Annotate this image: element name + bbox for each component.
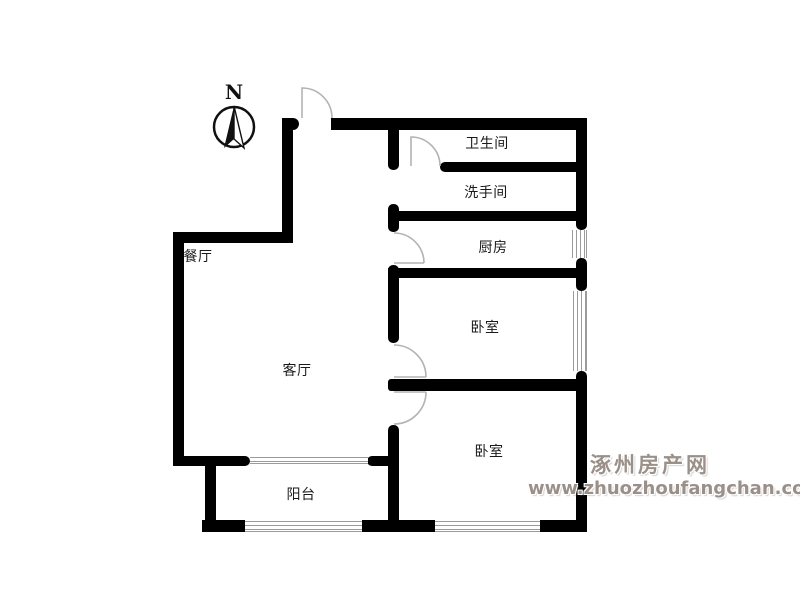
room-label-bedroom-south: 卧室: [475, 441, 504, 461]
compass-needle-light: [234, 106, 244, 148]
wall-washroom-bottom: [388, 211, 587, 221]
wall-bedroom-divider: [388, 379, 587, 391]
room-label-bathroom: 卫生间: [465, 133, 509, 153]
room-label-balcony: 阳台: [287, 484, 316, 504]
wall-kitchen-bottom: [388, 268, 587, 278]
wall-center-seg-3: [388, 265, 399, 343]
wall-bottom-right: [540, 520, 587, 532]
bedroom-south-window: [435, 521, 540, 532]
wall-top: [331, 118, 587, 130]
compass-circle: [214, 107, 254, 147]
wall-bottom-balcony-left: [202, 520, 245, 532]
compass: [214, 106, 254, 148]
bedroom-south-door-arc: [394, 392, 426, 424]
kitchen-window: [572, 230, 587, 258]
plan-overlay: [0, 0, 800, 600]
kitchen-door-arc: [394, 233, 424, 263]
room-label-living: 客厅: [283, 360, 312, 380]
floorplan: N 卫生间 洗手间 厨房 卧室 卧室 餐厅 客厅 阳台 涿州房产网 www.zh…: [0, 0, 800, 600]
compass-needle-dark: [224, 106, 234, 148]
balcony-window: [245, 521, 362, 532]
compass-north-label: N: [225, 80, 243, 104]
room-label-kitchen: 厨房: [479, 237, 508, 257]
wall-center-seg-4: [388, 425, 399, 532]
watermark-site-url: www.zhuozhoufangchan.com: [528, 479, 772, 499]
bedroom-north-door-arc: [394, 345, 426, 377]
wall-left: [173, 232, 184, 466]
watermark: 涿州房产网 www.zhuozhoufangchan.com: [528, 454, 772, 499]
wall-bathroom-bottom: [440, 162, 587, 172]
room-label-bedroom-north: 卧室: [471, 317, 500, 337]
room-label-washroom: 洗手间: [464, 182, 508, 202]
bedroom-north-window: [573, 291, 587, 371]
wall-entry-vertical: [282, 118, 293, 243]
wall-living-bottom-left: [173, 456, 250, 466]
room-label-dining: 餐厅: [184, 246, 213, 266]
watermark-site-name: 涿州房产网: [528, 454, 772, 478]
wall-dining-top: [173, 232, 293, 243]
wall-center-seg-2: [388, 204, 399, 232]
bathroom-door-arc: [411, 137, 440, 166]
entry-door-arc: [302, 88, 332, 118]
wall-right-lower: [576, 371, 587, 532]
living-balcony-window: [250, 457, 368, 464]
wall-center-seg-1: [388, 130, 399, 170]
